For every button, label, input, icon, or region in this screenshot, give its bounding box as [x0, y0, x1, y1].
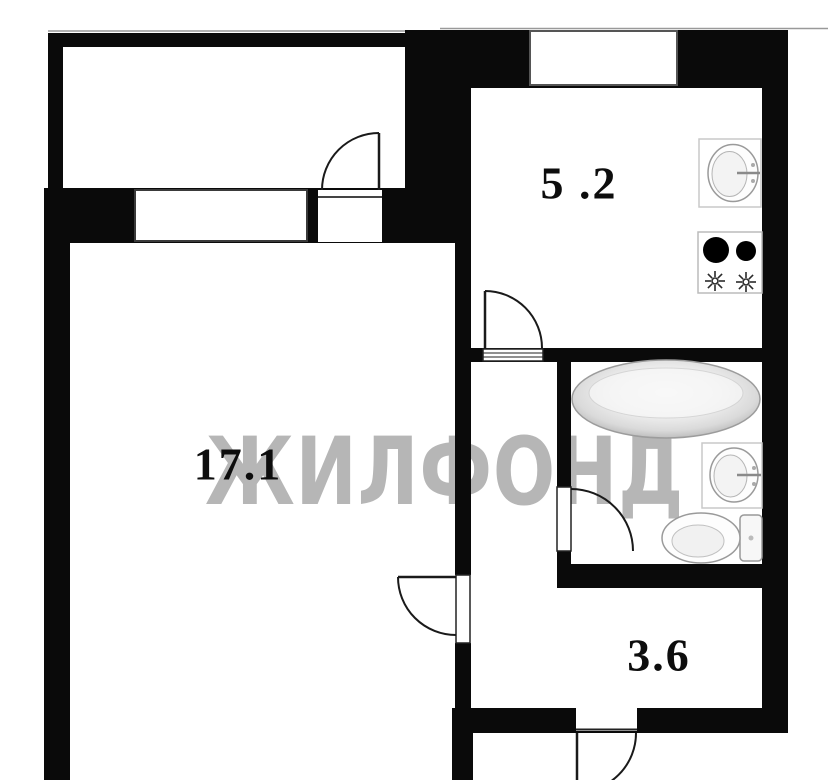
bathroom-door-swing-arc [571, 489, 633, 551]
wall-segment [557, 564, 762, 588]
hallway-area-label: 3.6 [627, 629, 691, 682]
door-openings [318, 190, 637, 731]
wall-segment [557, 362, 571, 588]
entrance-door-swing-arc [577, 733, 636, 780]
stove [698, 232, 762, 293]
kitchen-sink [699, 139, 761, 207]
wall-segment [44, 188, 70, 780]
wall-segment [452, 733, 473, 780]
balcony-window [135, 190, 307, 241]
wall-segment [762, 30, 788, 733]
wall-segment [455, 643, 471, 709]
bathroom-door-jamb [557, 487, 571, 551]
wall-segment [455, 243, 471, 575]
stove-plate-icon [736, 241, 756, 261]
flush-button-icon [749, 536, 754, 541]
kitchen-window [530, 31, 677, 85]
room-door-jamb [456, 575, 470, 643]
floor-plan-drawing [0, 0, 828, 780]
bathtub [572, 360, 760, 438]
stove-plate-icon [703, 237, 729, 263]
entrance-door-sill [576, 708, 637, 731]
kitchen-door-swing-arc [485, 291, 542, 348]
living-room-area-label: 17.1 [194, 438, 283, 491]
wall-segment [48, 33, 413, 47]
balcony-door-swing-arc [322, 133, 379, 190]
kitchen-area-label: 5 .2 [541, 157, 618, 210]
bathroom-sink [702, 443, 762, 508]
room-door-swing-arc [398, 577, 456, 635]
floor-plan: ЖИЛФОНД [0, 0, 828, 780]
toilet [662, 513, 762, 563]
wall-segment [48, 47, 63, 190]
kitchen-door-sill [483, 349, 543, 361]
